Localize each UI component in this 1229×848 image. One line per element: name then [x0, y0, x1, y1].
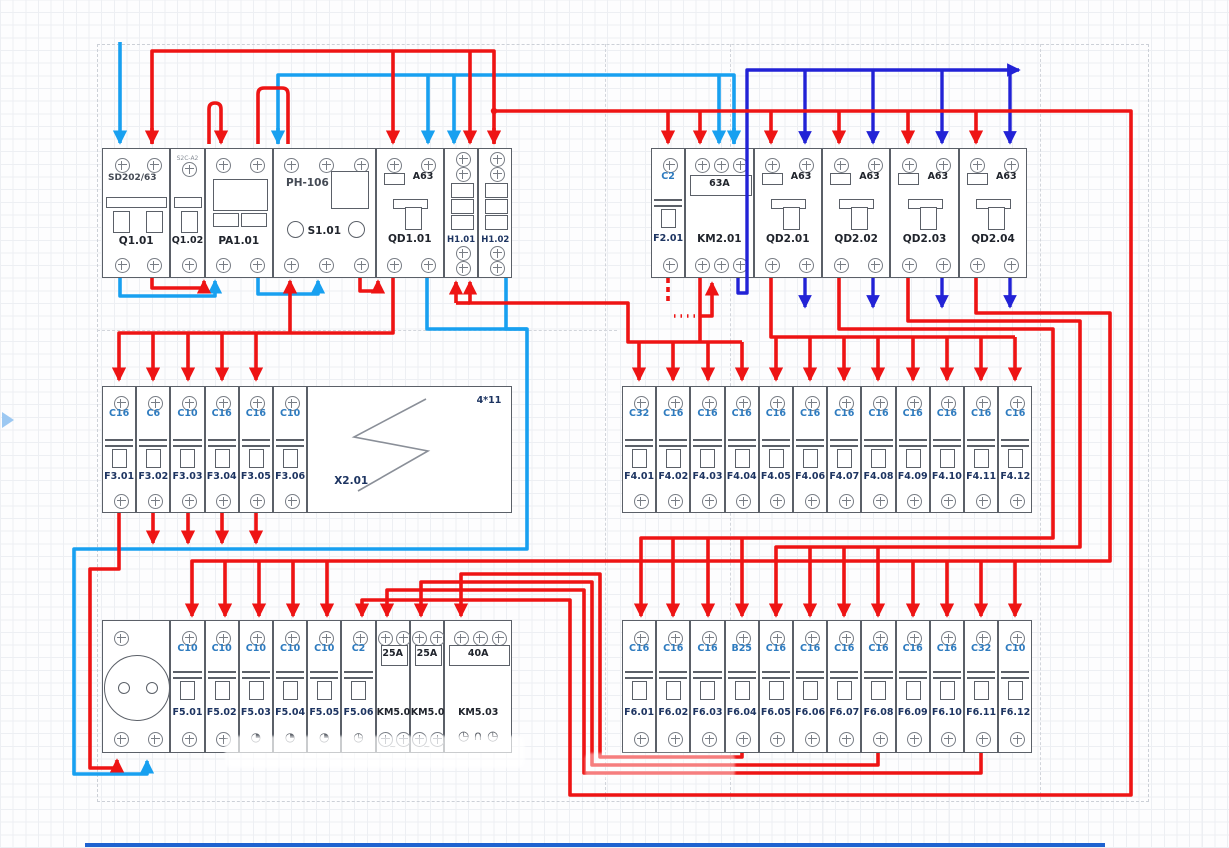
rcd-QD1.01[interactable]: A63QD1.01 — [376, 148, 444, 278]
mcb-F4.01[interactable]: C32F4.01 — [622, 386, 656, 513]
circuit-label: F6.08 — [862, 707, 894, 718]
din-clip-line — [173, 439, 201, 441]
terminal-screw — [490, 246, 505, 261]
mcb-F5.06[interactable]: C2F5.06◷ — [341, 620, 375, 753]
amp-rating-label: B25 — [726, 643, 758, 654]
amp-rating-label: C16 — [760, 643, 792, 654]
device-label: QD2.03 — [891, 233, 957, 245]
din-clip-line — [933, 671, 961, 673]
breaker-handle[interactable] — [661, 209, 676, 228]
mcb-F2.01[interactable]: C2F2.01 — [651, 148, 685, 278]
amp-rating-label: C16 — [931, 408, 963, 419]
terminal-screw — [668, 732, 683, 747]
terminal-screw — [148, 732, 163, 747]
mcb-F3.02[interactable]: C6F3.02 — [136, 386, 170, 513]
terminal-screw — [456, 246, 471, 261]
terminal-screw — [473, 631, 488, 646]
contactor-KM2.01[interactable]: 63AKM2.01 — [685, 148, 753, 278]
rcd-handle-stem[interactable] — [988, 207, 1005, 230]
terminal-X2.01[interactable]: 4*11X2.01 — [307, 386, 512, 513]
breaker-handle[interactable] — [906, 449, 921, 468]
amp-rating-label: C16 — [726, 408, 758, 419]
breaker-handle[interactable] — [215, 681, 230, 700]
circuit-label: F5.06 — [342, 707, 374, 718]
device-label: KM5.01 — [377, 707, 409, 718]
amp-rating-label: A63 — [791, 171, 812, 182]
terminal-screw — [714, 158, 729, 173]
lamp-body — [451, 199, 474, 214]
terminal-screw — [834, 158, 849, 173]
din-clip-line — [208, 671, 236, 673]
breaker-handle[interactable] — [906, 681, 921, 700]
terminal-screw — [970, 158, 985, 173]
din-clip-line — [899, 439, 927, 441]
breaker-handle[interactable] — [735, 681, 750, 700]
breaker-handle[interactable] — [249, 449, 264, 468]
breaker-handle[interactable] — [974, 449, 989, 468]
breaker-handle[interactable] — [769, 681, 784, 700]
amp-rating-label: C16 — [965, 408, 997, 419]
mcb-F4.03[interactable]: C16F4.03 — [690, 386, 724, 513]
din-clip-line — [276, 677, 304, 679]
din-clip-line — [830, 445, 858, 447]
din-clip-line — [864, 671, 892, 673]
amp-rating-label: C10 — [308, 643, 340, 654]
terminal-screw — [902, 258, 917, 273]
device-label: QD2.01 — [755, 233, 821, 245]
breaker-handle[interactable] — [666, 449, 681, 468]
din-clip-line — [693, 439, 721, 441]
breaker-handle[interactable] — [803, 681, 818, 700]
busbar — [174, 197, 201, 208]
amp-rating-label: C16 — [760, 408, 792, 419]
lamp-H1.01[interactable]: H1.01 — [444, 148, 478, 278]
din-clip-line — [967, 439, 995, 441]
breaker-handle[interactable] — [215, 449, 230, 468]
mcb-F5.05[interactable]: C10F5.05◔ — [307, 620, 341, 753]
terminal-screw — [182, 494, 197, 509]
terminal-screw — [714, 258, 729, 273]
din-clip-line — [654, 199, 682, 201]
terminal-screw — [970, 258, 985, 273]
din-clip-line — [967, 671, 995, 673]
amp-rating-label: C16 — [897, 643, 929, 654]
breaker-handle[interactable] — [940, 449, 955, 468]
circuit-label: F4.07 — [828, 471, 860, 482]
terminal-screw — [907, 732, 922, 747]
terminal-screw — [770, 494, 785, 509]
breaker-handle[interactable] — [803, 449, 818, 468]
mcb-F5.01[interactable]: C10F5.01 — [170, 620, 204, 753]
din-clip-line — [693, 445, 721, 447]
mcb-F4.12[interactable]: C16F4.12 — [998, 386, 1032, 513]
circuit-label: F3.03 — [171, 471, 203, 482]
breaker-handle[interactable] — [632, 681, 647, 700]
breaker-handle[interactable] — [351, 681, 366, 700]
terminal-screw — [936, 258, 951, 273]
mcb-F3.01[interactable]: C16F3.01 — [102, 386, 136, 513]
test-window — [830, 173, 851, 185]
model-label: SD202/63 — [108, 173, 157, 183]
mcb-F4.09[interactable]: C16F4.09 — [896, 386, 930, 513]
mcb-F4.05[interactable]: C16F4.05 — [759, 386, 793, 513]
mcb-F6.08[interactable]: C16F6.08 — [861, 620, 895, 753]
terminal-screw — [1010, 732, 1025, 747]
din-clip-line — [173, 671, 201, 673]
rcd-QD2.02[interactable]: A63QD2.02 — [822, 148, 890, 278]
din-clip-line — [796, 439, 824, 441]
terminal-screw — [285, 494, 300, 509]
mcb-F4.11[interactable]: C16F4.11 — [964, 386, 998, 513]
terminal-screw — [634, 494, 649, 509]
circuit-label: F4.10 — [931, 471, 963, 482]
mcb-F4.04[interactable]: C16F4.04 — [725, 386, 759, 513]
rcd-handle-stem[interactable] — [851, 207, 868, 230]
mcb-F6.02[interactable]: C16F6.02 — [656, 620, 690, 753]
breaker-handle[interactable] — [249, 681, 264, 700]
mcb-F6.10[interactable]: C16F6.10 — [930, 620, 964, 753]
breaker-handle[interactable] — [181, 211, 198, 233]
din-clip-line — [654, 205, 682, 207]
breaker-handle[interactable] — [283, 681, 298, 700]
amp-rating-label: C10 — [274, 643, 306, 654]
breaker-handle[interactable] — [146, 211, 163, 233]
terminal-screw — [733, 258, 748, 273]
circuit-label: F5.02 — [206, 707, 238, 718]
mcb-F3.04[interactable]: C16F3.04 — [205, 386, 239, 513]
breaker-handle[interactable] — [871, 449, 886, 468]
terminal-screw — [387, 158, 402, 173]
terminal-screw — [147, 158, 162, 173]
circuit-label: F5.04 — [274, 707, 306, 718]
rcd-handle-stem[interactable] — [783, 207, 800, 230]
breaker-handle[interactable] — [871, 681, 886, 700]
terminal-screw — [182, 162, 197, 177]
din-clip-line — [344, 677, 372, 679]
mcb-F6.07[interactable]: C16F6.07 — [827, 620, 861, 753]
rcd-handle-stem[interactable] — [920, 207, 937, 230]
mcb-F4.02[interactable]: C16F4.02 — [656, 386, 690, 513]
din-clip-line — [208, 677, 236, 679]
amp-rating-label: C16 — [657, 408, 689, 419]
din-clip-line — [933, 445, 961, 447]
circuit-label: F4.12 — [999, 471, 1031, 482]
amp-rating-label: C2 — [652, 171, 684, 182]
din-clip-line — [242, 445, 270, 447]
terminal-screw — [114, 494, 129, 509]
device-label: S1.01 — [274, 225, 375, 237]
watermark-smudge — [225, 736, 525, 768]
breaker-handle[interactable] — [700, 449, 715, 468]
din-clip-line — [344, 671, 372, 673]
terminal-screw — [873, 494, 888, 509]
din-clip-line — [1001, 677, 1029, 679]
test-window — [762, 173, 783, 185]
circuit-label: F4.02 — [657, 471, 689, 482]
meter-button[interactable] — [241, 213, 267, 227]
terminal-zigzag-icon — [354, 399, 428, 491]
terminal-screw — [976, 732, 991, 747]
km5-KM5.02[interactable]: 25AKM5.02~ — [410, 620, 444, 753]
breaker-handle[interactable] — [1008, 681, 1023, 700]
circuit-label: F4.11 — [965, 471, 997, 482]
km5-KM5.01[interactable]: 25AKM5.01~ — [376, 620, 410, 753]
terminal-screw — [148, 494, 163, 509]
layout-guide-v1 — [605, 44, 606, 800]
mcb-F6.01[interactable]: C16F6.01 — [622, 620, 656, 753]
mcb-F6.12[interactable]: C10F6.12 — [998, 620, 1032, 753]
terminal-screw — [115, 158, 130, 173]
lamp-H1.02[interactable]: H1.02 — [478, 148, 512, 278]
circuit-label: F4.05 — [760, 471, 792, 482]
amp-rating-label: C16 — [828, 408, 860, 419]
device-label: PA1.01 — [206, 235, 272, 247]
circuit-label: F6.06 — [794, 707, 826, 718]
device-label: H1.01 — [445, 235, 477, 245]
terminal-screw — [765, 258, 780, 273]
circuit-label: F4.06 — [794, 471, 826, 482]
breaker-handle[interactable] — [317, 681, 332, 700]
layout-guide-h1 — [97, 330, 617, 331]
terminal-screw — [695, 258, 710, 273]
amp-rating-label: C10 — [274, 408, 306, 419]
mcb-F4.07[interactable]: C16F4.07 — [827, 386, 861, 513]
din-clip-line — [693, 671, 721, 673]
din-clip-line — [242, 439, 270, 441]
amp-rating-label: C16 — [862, 643, 894, 654]
circuit-label: F4.01 — [623, 471, 655, 482]
amp-rating-label: C16 — [691, 643, 723, 654]
model-label: S2C-A2 — [171, 155, 203, 162]
din-clip-line — [310, 677, 338, 679]
din-clip-line — [864, 677, 892, 679]
din-clip-line — [208, 439, 236, 441]
circuit-label: F3.04 — [206, 471, 238, 482]
breaker-handle[interactable] — [735, 449, 750, 468]
rcd-QD2.04[interactable]: A63QD2.04 — [959, 148, 1027, 278]
socket-socket-outlet[interactable] — [102, 620, 170, 753]
breaker-handle[interactable] — [666, 681, 681, 700]
terminal-screw — [490, 152, 505, 167]
device-label: Q1.01 — [103, 235, 169, 247]
din-clip-line — [276, 445, 304, 447]
circuit-label: F4.08 — [862, 471, 894, 482]
amp-rating-label: A63 — [928, 171, 949, 182]
canvas-scroll-marker-icon[interactable] — [2, 412, 14, 428]
test-window — [384, 173, 405, 185]
breaker-handle[interactable] — [113, 211, 130, 233]
terminal-screw — [216, 158, 231, 173]
terminal-screw — [354, 258, 369, 273]
model-label: РН-106 — [286, 177, 329, 189]
rcd-QD2.03[interactable]: A63QD2.03 — [890, 148, 958, 278]
meter-PA1.01[interactable]: PA1.01 — [205, 148, 273, 278]
test-window — [898, 173, 919, 185]
mcb-F6.09[interactable]: C16F6.09 — [896, 620, 930, 753]
din-clip-line — [728, 439, 756, 441]
din-clip-line — [864, 445, 892, 447]
breaker-handle[interactable] — [112, 449, 127, 468]
mcb-F4.10[interactable]: C16F4.10 — [930, 386, 964, 513]
din-clip-line — [105, 445, 133, 447]
device-label: KM5.03 — [445, 707, 511, 718]
terminal-screw — [902, 158, 917, 173]
breaker-handle[interactable] — [1008, 449, 1023, 468]
terminal-screw — [976, 494, 991, 509]
amp-rating-label: C32 — [623, 408, 655, 419]
amp-rating-label: C16 — [862, 408, 894, 419]
amp-rating-label: C16 — [691, 408, 723, 419]
din-clip-line — [310, 671, 338, 673]
terminal-screw — [456, 152, 471, 167]
mcb-F5.02[interactable]: C10F5.02 — [205, 620, 239, 753]
breaker-handle[interactable] — [837, 449, 852, 468]
din-clip-line — [830, 439, 858, 441]
breaker-handle[interactable] — [940, 681, 955, 700]
breaker-handle[interactable] — [180, 449, 195, 468]
amp-rating-label: A63 — [996, 171, 1017, 182]
breaker-handle[interactable] — [769, 449, 784, 468]
terminal-screw — [114, 732, 129, 747]
terminal-screw — [805, 732, 820, 747]
circuit-label: F4.04 — [726, 471, 758, 482]
lamp-body — [485, 183, 508, 198]
breaker-handle[interactable] — [146, 449, 161, 468]
mcb-F6.11[interactable]: C32F6.11 — [964, 620, 998, 753]
din-clip-line — [173, 445, 201, 447]
terminal-screw — [702, 732, 717, 747]
terminal-screw — [250, 258, 265, 273]
din-clip-line — [762, 445, 790, 447]
mcb-F4.08[interactable]: C16F4.08 — [861, 386, 895, 513]
din-clip-line — [625, 445, 653, 447]
amp-rating-label: 25A — [411, 648, 443, 659]
terminal-screw — [765, 158, 780, 173]
socket-face — [104, 655, 170, 721]
din-clip-line — [762, 671, 790, 673]
amp-rating-label: C16 — [794, 643, 826, 654]
terminal-screw — [868, 258, 883, 273]
din-clip-line — [728, 671, 756, 673]
terminal-screw — [490, 261, 505, 276]
km5-KM5.03[interactable]: 40AKM5.03◷ ∩ ◷ — [444, 620, 512, 753]
lamp-body — [451, 215, 474, 230]
din-clip-line — [1001, 445, 1029, 447]
terminal-screw — [770, 732, 785, 747]
breaker-handle[interactable] — [974, 681, 989, 700]
mcb-F6.04[interactable]: B25F6.04 — [725, 620, 759, 753]
breaker-handle[interactable] — [700, 681, 715, 700]
terminal-screw — [907, 494, 922, 509]
circuit-label: F5.01 — [171, 707, 203, 718]
amp-rating-label: 63A — [686, 178, 752, 189]
meter-button[interactable] — [213, 213, 239, 227]
amp-rating-label: C10 — [171, 408, 203, 419]
circuit-label: F6.05 — [760, 707, 792, 718]
amp-rating-label: C32 — [965, 643, 997, 654]
din-clip-line — [899, 671, 927, 673]
terminal-screw — [839, 494, 854, 509]
terminal-screw — [1004, 258, 1019, 273]
amp-rating-label: C16 — [794, 408, 826, 419]
rcd-handle-stem[interactable] — [405, 207, 422, 230]
device-label: QD1.01 — [377, 233, 443, 245]
terminal-screw — [736, 732, 751, 747]
device-label: Q1.02 — [171, 235, 203, 246]
relay-S1.01[interactable]: РН-106S1.01 — [273, 148, 376, 278]
din-clip-line — [625, 677, 653, 679]
breaker-handle[interactable] — [837, 681, 852, 700]
terminal-screw — [456, 167, 471, 182]
amp-rating-label: C16 — [897, 408, 929, 419]
mcb-F4.06[interactable]: C16F4.06 — [793, 386, 827, 513]
lamp-body — [485, 215, 508, 230]
amp-rating-label: 25A — [377, 648, 409, 659]
circuit-label: F5.05 — [308, 707, 340, 718]
mcb-F3.05[interactable]: C16F3.05 — [239, 386, 273, 513]
din-clip-line — [1001, 439, 1029, 441]
mcb-F5.04[interactable]: C10F5.04◔ — [273, 620, 307, 753]
mcb-F3.06[interactable]: C10F3.06 — [273, 386, 307, 513]
din-clip-line — [625, 671, 653, 673]
din-clip-line — [659, 671, 687, 673]
din-clip-line — [864, 439, 892, 441]
breaker-handle[interactable] — [632, 449, 647, 468]
circuit-label: F6.09 — [897, 707, 929, 718]
circuit-label: F3.01 — [103, 471, 135, 482]
terminal-screw — [1010, 494, 1025, 509]
wire-junction — [491, 108, 497, 114]
din-clip-line — [762, 439, 790, 441]
mcb-F6.03[interactable]: C16F6.03 — [690, 620, 724, 753]
circuit-label: F2.01 — [652, 233, 684, 244]
din-clip-line — [899, 445, 927, 447]
din-clip-line — [728, 445, 756, 447]
terminal-screw — [421, 258, 436, 273]
main-Q1.01[interactable]: SD202/63Q1.01 — [102, 148, 170, 278]
terminal-screw — [941, 732, 956, 747]
din-clip-line — [242, 671, 270, 673]
device-label: QD2.04 — [960, 233, 1026, 245]
mcb-F3.03[interactable]: C10F3.03 — [170, 386, 204, 513]
circuit-label: F6.07 — [828, 707, 860, 718]
terminal-screw — [216, 258, 231, 273]
lamp-body — [451, 183, 474, 198]
mcb-F6.05[interactable]: C16F6.05 — [759, 620, 793, 753]
breaker-handle[interactable] — [180, 681, 195, 700]
rcd-QD2.01[interactable]: A63QD2.01 — [754, 148, 822, 278]
amp-rating-label: C16 — [240, 408, 272, 419]
meter-display — [213, 179, 268, 211]
terminal-screw — [702, 494, 717, 509]
din-clip-line — [242, 677, 270, 679]
din-clip-line — [796, 671, 824, 673]
terminal-screw — [834, 258, 849, 273]
terminal-screw — [412, 631, 427, 646]
amp-rating-label: C16 — [828, 643, 860, 654]
terminal-screw — [250, 494, 265, 509]
mcb-F6.06[interactable]: C16F6.06 — [793, 620, 827, 753]
terminal-screw — [319, 258, 334, 273]
breaker-handle[interactable] — [283, 449, 298, 468]
aux-Q1.02[interactable]: S2C-A2Q1.02 — [170, 148, 204, 278]
mcb-F5.03[interactable]: C10F5.03◔ — [239, 620, 273, 753]
circuit-label: F3.05 — [240, 471, 272, 482]
terminal-screw — [387, 258, 402, 273]
terminal-screw — [182, 732, 197, 747]
din-clip-line — [693, 677, 721, 679]
device-label: H1.02 — [479, 235, 511, 245]
